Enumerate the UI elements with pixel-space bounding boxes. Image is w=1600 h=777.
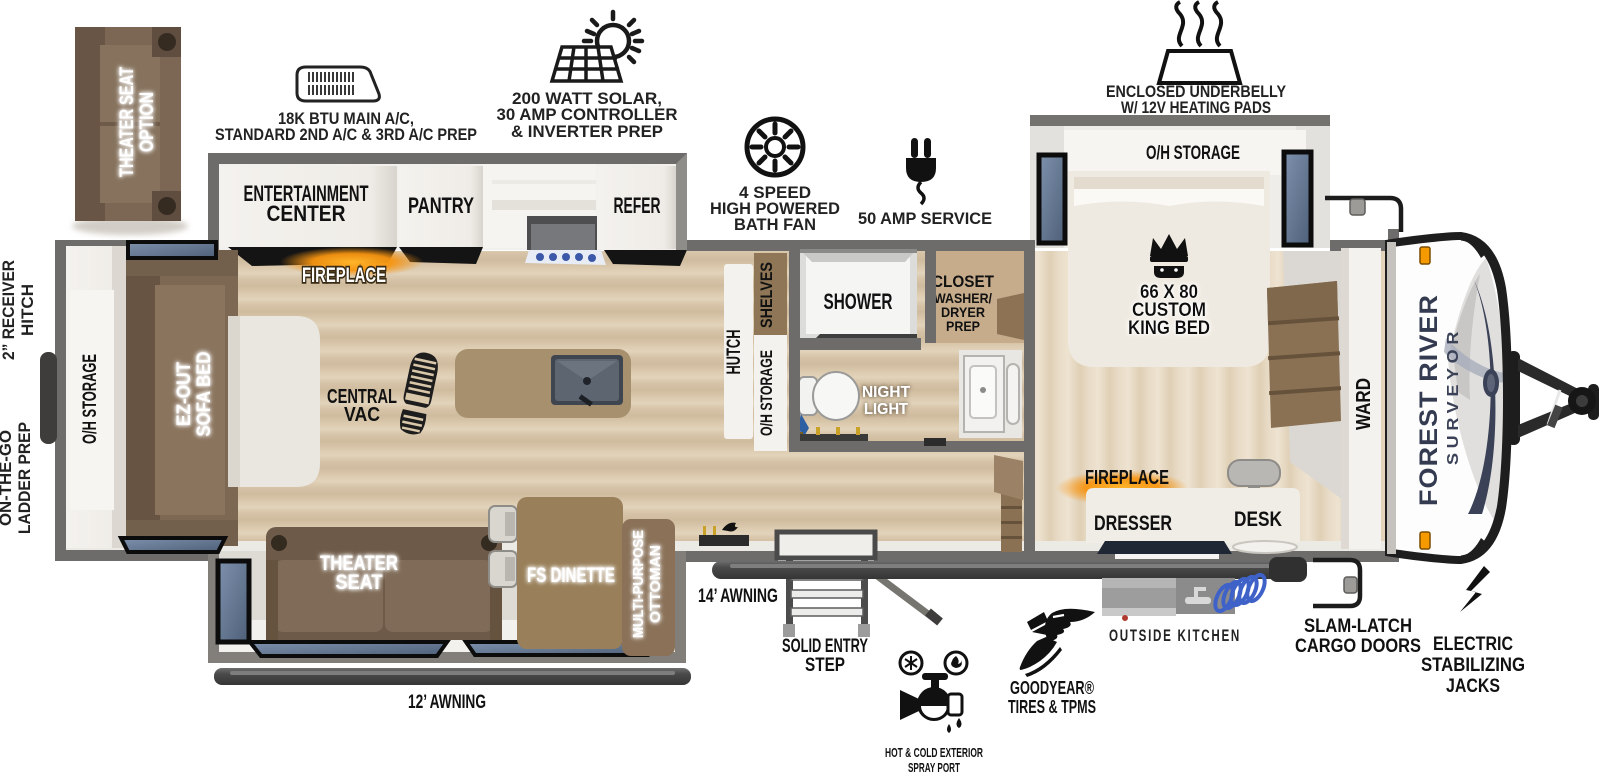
- svg-text:SPRAY PORT: SPRAY PORT: [908, 761, 960, 775]
- svg-text:OPTION: OPTION: [137, 92, 158, 152]
- svg-text:VAC: VAC: [344, 404, 380, 426]
- svg-text:DESK: DESK: [1234, 508, 1282, 531]
- svg-text:PREP: PREP: [946, 318, 980, 334]
- svg-text:STANDARD 2ND A/C & 3RD A/C PRE: STANDARD 2ND A/C & 3RD A/C PREP: [215, 125, 477, 144]
- svg-text:14’ AWNING: 14’ AWNING: [698, 586, 778, 607]
- svg-text:O/H STORAGE: O/H STORAGE: [1146, 143, 1240, 164]
- svg-text:HOT & COLD EXTERIOR: HOT & COLD EXTERIOR: [885, 746, 983, 760]
- svg-text:CLOSET: CLOSET: [932, 272, 995, 291]
- svg-text:GOODYEAR®: GOODYEAR®: [1010, 678, 1094, 698]
- svg-text:TIRES & TPMS: TIRES & TPMS: [1008, 697, 1096, 717]
- svg-text:OUTSIDE KITCHEN: OUTSIDE KITCHEN: [1109, 626, 1241, 645]
- svg-text:THEATER SEAT: THEATER SEAT: [117, 67, 138, 177]
- svg-text:HITCH: HITCH: [18, 284, 37, 336]
- svg-text:FS DINETTE: FS DINETTE: [527, 564, 615, 587]
- svg-text:STABILIZING: STABILIZING: [1421, 655, 1525, 676]
- svg-text:EZ-OUT: EZ-OUT: [174, 362, 195, 426]
- svg-text:STEP: STEP: [805, 655, 845, 676]
- svg-text:REFER: REFER: [614, 193, 661, 218]
- svg-text:50 AMP SERVICE: 50 AMP SERVICE: [858, 209, 992, 228]
- svg-text:PANTRY: PANTRY: [408, 193, 474, 218]
- svg-text:CARGO DOORS: CARGO DOORS: [1295, 636, 1421, 657]
- svg-text:OTTOMAN: OTTOMAN: [647, 545, 664, 623]
- svg-text:NIGHT: NIGHT: [862, 384, 910, 401]
- svg-text:JACKS: JACKS: [1446, 676, 1500, 697]
- svg-text:LADDER PREP: LADDER PREP: [15, 422, 34, 534]
- svg-text:KING BED: KING BED: [1128, 318, 1210, 339]
- svg-text:30 AMP CONTROLLER: 30 AMP CONTROLLER: [497, 106, 678, 124]
- svg-text:SHELVES: SHELVES: [757, 262, 776, 328]
- svg-text:FIREPLACE: FIREPLACE: [1085, 467, 1169, 489]
- svg-text:12’ AWNING: 12’ AWNING: [408, 692, 486, 713]
- svg-text:O/H STORAGE: O/H STORAGE: [757, 350, 776, 436]
- svg-text:SOLID ENTRY: SOLID ENTRY: [782, 636, 868, 657]
- svg-text:& INVERTER PREP: & INVERTER PREP: [511, 123, 663, 141]
- svg-text:HUTCH: HUTCH: [724, 330, 745, 375]
- svg-text:FOREST RIVER: FOREST RIVER: [1415, 294, 1443, 506]
- svg-text:SURVEYOR: SURVEYOR: [1445, 327, 1462, 465]
- svg-text:ON-THE-GO: ON-THE-GO: [0, 430, 15, 526]
- svg-text:O/H STORAGE: O/H STORAGE: [80, 354, 101, 444]
- svg-text:SLAM-LATCH: SLAM-LATCH: [1304, 616, 1412, 637]
- svg-text:SOFA BED: SOFA BED: [194, 352, 215, 437]
- svg-text:MULTI-PURPOSE: MULTI-PURPOSE: [630, 530, 647, 638]
- svg-text:SEAT: SEAT: [336, 571, 383, 594]
- svg-text:WARD: WARD: [1353, 378, 1375, 430]
- svg-text:CENTER: CENTER: [267, 201, 346, 226]
- svg-text:SHOWER: SHOWER: [824, 289, 893, 314]
- svg-text:BATH FAN: BATH FAN: [734, 215, 816, 234]
- svg-text:DRESSER: DRESSER: [1094, 512, 1172, 535]
- svg-text:LIGHT: LIGHT: [864, 401, 908, 418]
- svg-text:FIREPLACE: FIREPLACE: [302, 264, 386, 287]
- svg-text:ELECTRIC: ELECTRIC: [1433, 634, 1513, 655]
- svg-text:2” RECEIVER: 2” RECEIVER: [0, 260, 18, 360]
- svg-text:W/ 12V HEATING PADS: W/ 12V HEATING PADS: [1121, 98, 1271, 117]
